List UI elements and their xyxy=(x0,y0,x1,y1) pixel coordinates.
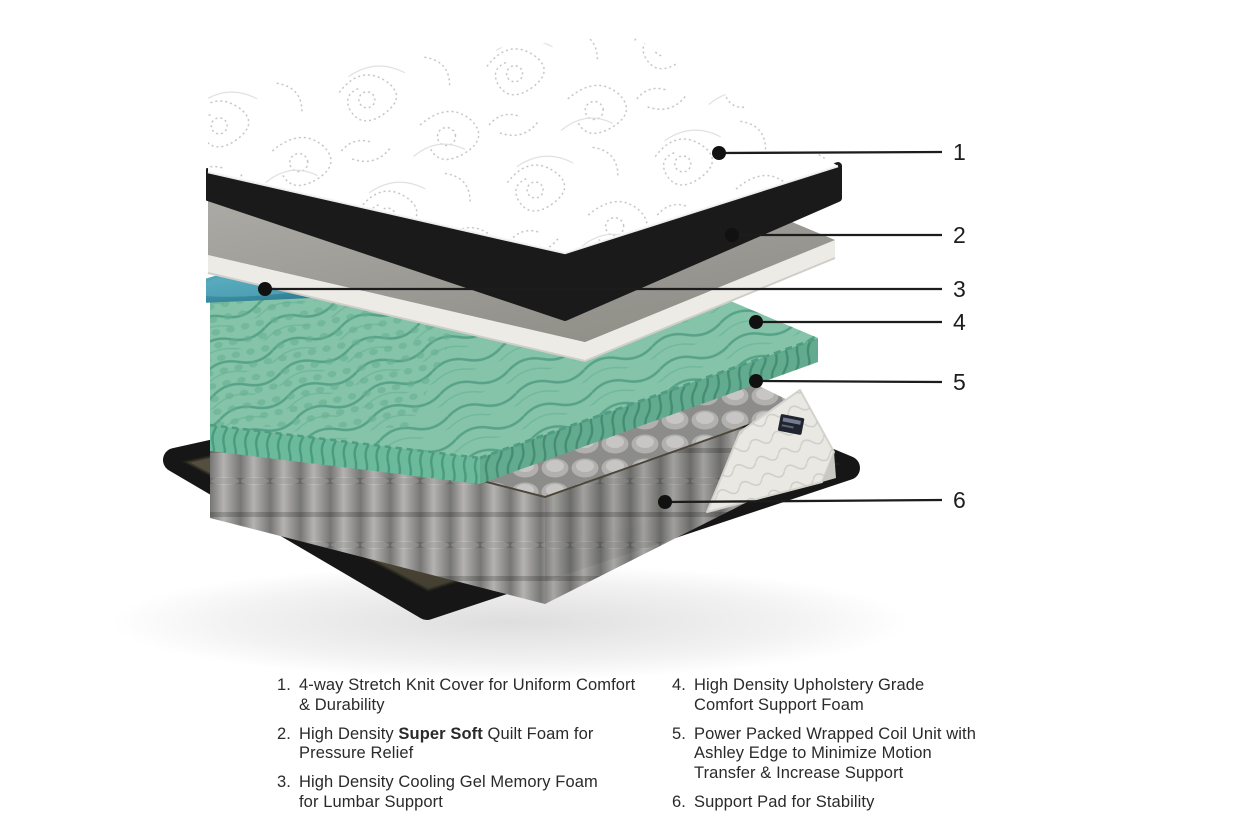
legend-item-1-text: 4-way Stretch Knit Cover for Uniform Com… xyxy=(299,676,635,716)
legend-item-3: 3. High Density Cooling Gel Memory Foam … xyxy=(277,773,657,813)
legend-right-column: 4. High Density Upholstery Grade Comfort… xyxy=(672,676,992,813)
legend-item-6: 6. Support Pad for Stability xyxy=(672,793,992,813)
legend-item-5: 5. Power Packed Wrapped Coil Unit with A… xyxy=(672,725,992,784)
callout-number-1: 1 xyxy=(953,139,966,165)
callout-number-5: 5 xyxy=(953,369,966,395)
legend-item-5-number: 5. xyxy=(672,725,694,745)
mattress-diagram-page: 1 2 3 4 5 6 1. 4-way Stretch Knit Cover … xyxy=(0,0,1260,840)
legend-item-2: 2. High Density Super Soft Quilt Foam fo… xyxy=(277,725,657,765)
callout-number-3: 3 xyxy=(953,276,966,302)
legend-item-2-text: High Density Super Soft Quilt Foam for P… xyxy=(299,725,593,765)
legend-item-4-text: High Density Upholstery Grade Comfort Su… xyxy=(694,676,924,716)
legend-item-5-text: Power Packed Wrapped Coil Unit with Ashl… xyxy=(694,725,976,784)
legend-item-1: 1. 4-way Stretch Knit Cover for Uniform … xyxy=(277,676,657,716)
legend-item-4: 4. High Density Upholstery Grade Comfort… xyxy=(672,676,992,716)
legend-item-3-text: High Density Cooling Gel Memory Foam for… xyxy=(299,773,598,813)
callout-number-4: 4 xyxy=(953,309,966,335)
callout-number-2: 2 xyxy=(953,222,966,248)
legend-item-6-number: 6. xyxy=(672,793,694,813)
legend-item-1-number: 1. xyxy=(277,676,299,696)
legend-item-6-text: Support Pad for Stability xyxy=(694,793,874,813)
legend-item-4-number: 4. xyxy=(672,676,694,696)
legend-left-column: 1. 4-way Stretch Knit Cover for Uniform … xyxy=(277,676,657,813)
legend-item-2-number: 2. xyxy=(277,725,299,745)
legend-item-3-number: 3. xyxy=(277,773,299,793)
callout-number-6: 6 xyxy=(953,487,966,513)
